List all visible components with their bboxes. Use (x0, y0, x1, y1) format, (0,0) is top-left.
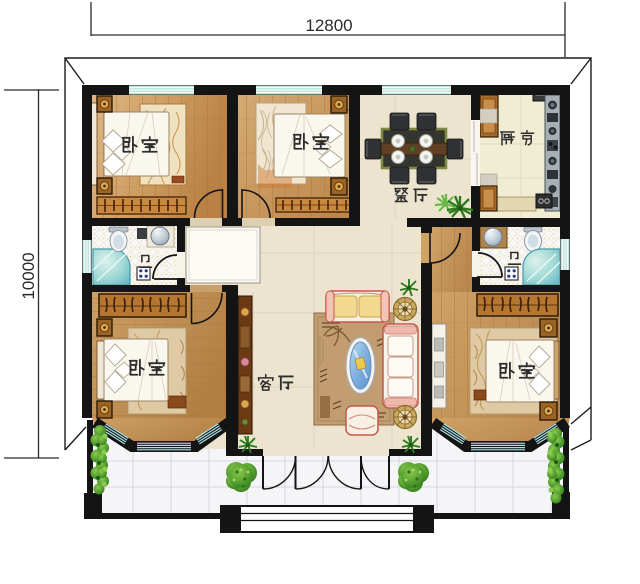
svg-text:12800: 12800 (305, 16, 352, 35)
svg-text:10000: 10000 (19, 252, 38, 299)
